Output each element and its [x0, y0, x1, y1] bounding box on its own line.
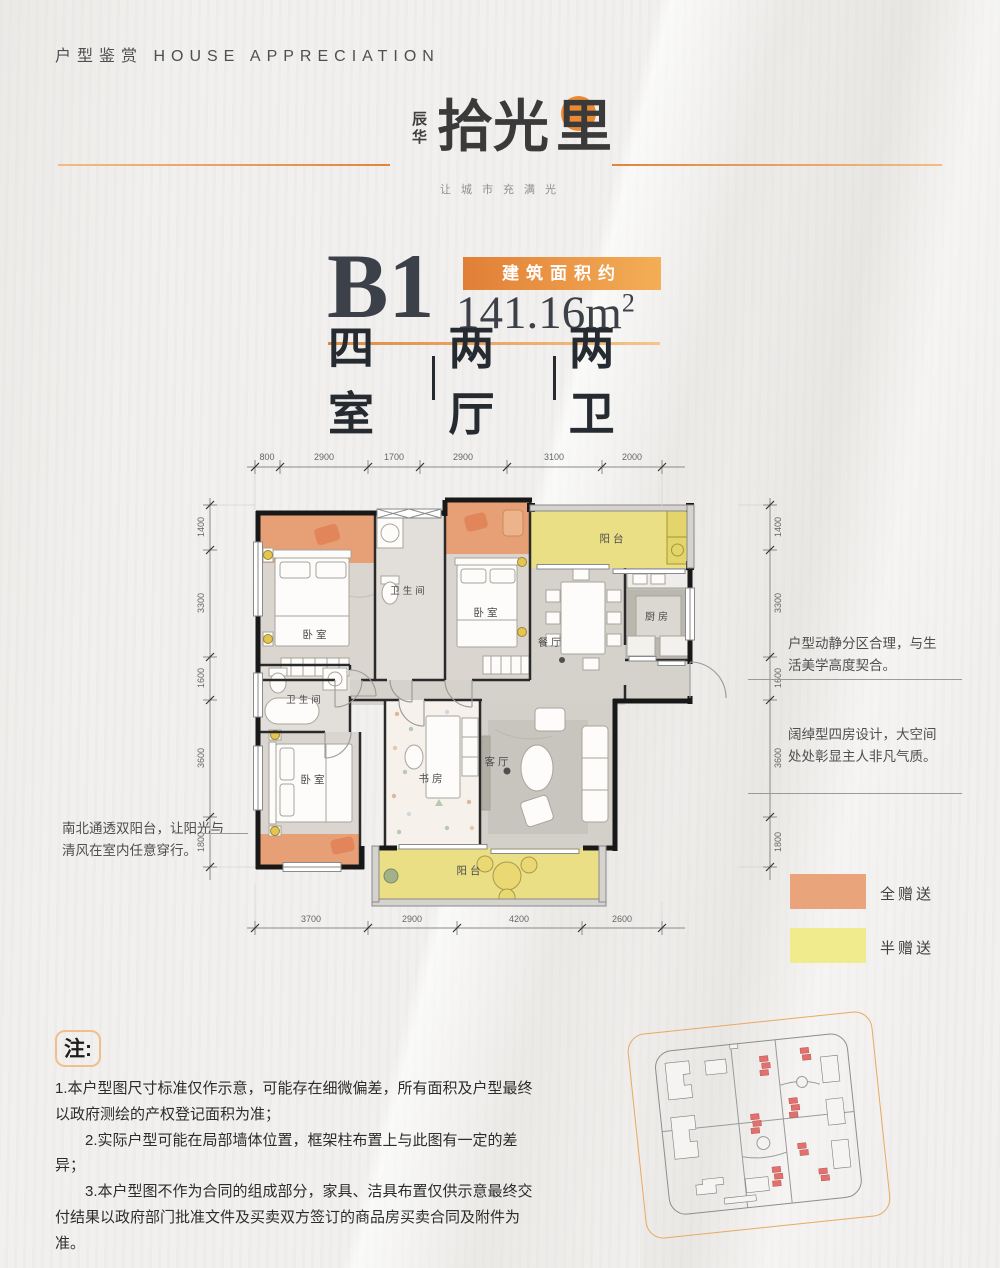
room-label: 阳台: [457, 864, 484, 877]
svg-text:3700: 3700: [301, 914, 321, 924]
svg-text:1400: 1400: [196, 517, 206, 537]
layout-summary: 四室 两厅 两卫: [328, 351, 660, 405]
site-plan-map: [633, 1016, 886, 1233]
svg-text:1800: 1800: [773, 832, 783, 852]
svg-text:3600: 3600: [196, 748, 206, 768]
logo-rule-left: [58, 164, 390, 166]
site-buildings-highlighted: [743, 1047, 830, 1189]
brand-li-glyph: 里: [556, 99, 612, 155]
svg-text:2900: 2900: [453, 452, 473, 462]
svg-text:1700: 1700: [384, 452, 404, 462]
room-label: 卧室: [303, 628, 330, 641]
svg-text:2000: 2000: [622, 452, 642, 462]
svg-text:2900: 2900: [402, 914, 422, 924]
svg-text:2900: 2900: [314, 452, 334, 462]
svg-text:3600: 3600: [773, 748, 783, 768]
svg-text:3300: 3300: [773, 593, 783, 613]
notes-tag: 注:: [55, 1030, 101, 1067]
legend-swatch-half-gift: [790, 928, 866, 963]
room-label: 餐厅: [538, 636, 564, 649]
legend-label-half-gift: 半赠送: [880, 937, 934, 958]
room-label: 书房: [419, 772, 446, 785]
legend-swatch-full-gift: [790, 874, 866, 909]
room-label: 卫生间: [390, 585, 428, 597]
layout-halls: 两厅: [448, 312, 539, 444]
brand-logo: 拾光 里: [437, 99, 612, 155]
legend-label-full-gift: 全赠送: [880, 883, 934, 904]
svg-text:1600: 1600: [196, 668, 206, 688]
annotation-rooms: 阔绰型四房设计，大空间处处彰显主人非凡气质。: [788, 724, 942, 768]
brand-main-text: 拾光: [437, 99, 549, 155]
layout-rooms: 四室: [328, 312, 419, 444]
floor-plan: 卧室 卫生间 卧室 阳台 厨房 餐厅 卫生间 卧室 书房 客厅 阳台 800: [185, 430, 815, 960]
note-item: 2.实际户型可能在局部墙体位置，框架柱布置上与此图有一定的差异；: [55, 1128, 539, 1180]
room-label: 客厅: [485, 755, 512, 768]
layout-baths: 两卫: [569, 312, 660, 444]
svg-text:800: 800: [259, 452, 274, 462]
brand-side-text: 辰华: [408, 111, 429, 147]
svg-text:3100: 3100: [544, 452, 564, 462]
svg-text:2600: 2600: [612, 914, 632, 924]
layout-divider: [553, 356, 556, 400]
brand-slogan: 让城市充满光: [440, 181, 566, 197]
note-item: 1.本户型图尺寸标准仅作示意，可能存在细微偏差，所有面积及户型最终以政府测绘的产…: [55, 1076, 539, 1128]
logo-rule-right: [612, 164, 942, 166]
annotation-rule-bottom: [748, 793, 962, 794]
svg-text:4200: 4200: [509, 914, 529, 924]
layout-divider: [432, 356, 435, 400]
notes-section: 注: 1.本户型图尺寸标准仅作示意，可能存在细微偏差，所有面积及户型最终以政府测…: [55, 1030, 539, 1257]
svg-text:1400: 1400: [773, 517, 783, 537]
room-label: 阳台: [600, 532, 627, 545]
site-plan: [626, 1010, 892, 1241]
annotation-rule-top: [748, 679, 962, 680]
svg-text:3300: 3300: [196, 593, 206, 613]
note-item: 3.本户型图不作为合同的组成部分，家具、洁具布置仅供示意最终交付结果以政府部门批…: [55, 1179, 539, 1256]
annotation-leader-left: [204, 833, 248, 834]
room-label: 卧室: [301, 773, 328, 786]
svg-text:1600: 1600: [773, 668, 783, 688]
room-label: 厨房: [645, 610, 671, 623]
room-label: 卫生间: [286, 694, 324, 706]
annotation-balcony: 南北通透双阳台，让阳光与清风在室内任意穿行。: [62, 818, 230, 862]
annotation-zoning: 户型动静分区合理，与生活美学高度契合。: [788, 633, 942, 677]
room-label: 卧室: [474, 606, 501, 619]
page-title: 户型鉴赏 HOUSE APPRECIATION: [55, 42, 440, 66]
